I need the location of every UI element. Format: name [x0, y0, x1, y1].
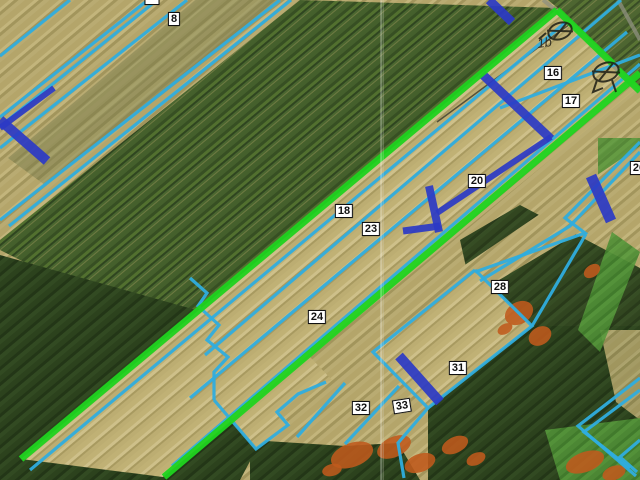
scan-crease — [380, 0, 384, 480]
drainage-line-navy — [403, 226, 440, 231]
map-canvas[interactable]: 1b 81617182023242628313233 — [0, 0, 640, 480]
map-overlay-graphics: 1b — [0, 0, 640, 480]
